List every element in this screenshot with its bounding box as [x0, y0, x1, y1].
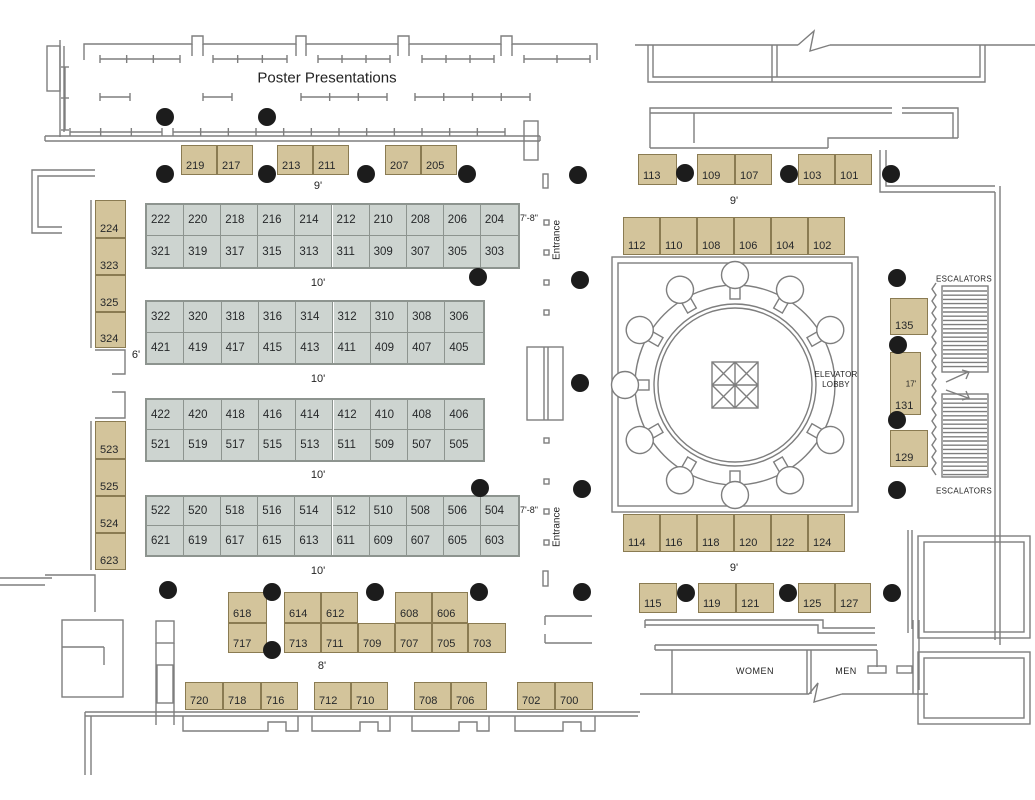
booth-219[interactable]: 219 — [181, 145, 217, 175]
booth-520[interactable]: 520 — [184, 497, 221, 526]
booth-507[interactable]: 507 — [408, 430, 445, 460]
women-room-label: WOMEN — [736, 666, 774, 676]
booth-122[interactable]: 122 — [771, 514, 808, 552]
booth-113[interactable]: 113 — [638, 154, 677, 185]
booth-216[interactable]: 216 — [258, 205, 295, 236]
booth-621[interactable]: 621 — [147, 526, 184, 555]
men-room-label: MEN — [835, 666, 857, 676]
booth-314[interactable]: 314 — [296, 302, 333, 333]
booth-420[interactable]: 420 — [184, 400, 221, 430]
booth-320[interactable]: 320 — [184, 302, 221, 333]
booth-414[interactable]: 414 — [296, 400, 333, 430]
column-dot — [159, 581, 177, 599]
column-dot — [258, 165, 276, 183]
booth-419[interactable]: 419 — [184, 333, 221, 364]
booth-700[interactable]: 700 — [555, 682, 593, 710]
column-dot — [573, 583, 591, 601]
booth-310[interactable]: 310 — [371, 302, 408, 333]
booth-611[interactable]: 611 — [333, 526, 370, 555]
booth-212[interactable]: 212 — [333, 205, 370, 236]
booth-523[interactable]: 523 — [95, 421, 126, 459]
booth-606[interactable]: 606 — [432, 592, 468, 623]
column-dot — [888, 481, 906, 499]
column-dot — [779, 584, 797, 602]
column-dot — [888, 269, 906, 287]
booth-312[interactable]: 312 — [334, 302, 371, 333]
escalators-label-bottom: ESCALATORS — [936, 487, 992, 496]
booth-129[interactable]: 129 — [890, 430, 928, 467]
escalators-label-top: ESCALATORS — [936, 275, 992, 284]
booth-319[interactable]: 319 — [184, 236, 221, 267]
booth-204[interactable]: 204 — [481, 205, 518, 236]
booth-135[interactable]: 135 — [890, 298, 928, 335]
booth-521[interactable]: 521 — [147, 430, 184, 460]
booth-509[interactable]: 509 — [371, 430, 408, 460]
booth-124[interactable]: 124 — [808, 514, 845, 552]
booth-703[interactable]: 703 — [468, 623, 506, 653]
booth-716[interactable]: 716 — [261, 682, 298, 710]
poster-presentations-label: Poster Presentations — [257, 70, 396, 87]
booth-110[interactable]: 110 — [660, 217, 697, 255]
dimension-label: 9' — [314, 180, 322, 192]
booth-127[interactable]: 127 — [835, 583, 871, 613]
column-dot — [357, 165, 375, 183]
booth-421[interactable]: 421 — [147, 333, 184, 364]
booth-309[interactable]: 309 — [370, 236, 407, 267]
booth-623[interactable]: 623 — [95, 533, 126, 570]
column-dot — [263, 583, 281, 601]
booth-205[interactable]: 205 — [421, 145, 457, 175]
booth-505[interactable]: 505 — [445, 430, 482, 460]
booth-107[interactable]: 107 — [735, 154, 772, 185]
booth-506[interactable]: 506 — [444, 497, 481, 526]
column-dot — [889, 336, 907, 354]
booth-224[interactable]: 224 — [95, 200, 126, 238]
column-dot — [366, 583, 384, 601]
dimension-label: 10' — [311, 469, 325, 481]
booth-711[interactable]: 711 — [321, 623, 358, 653]
booth-407[interactable]: 407 — [408, 333, 445, 364]
booth-321[interactable]: 321 — [147, 236, 184, 267]
column-dot — [571, 271, 589, 289]
booth-522[interactable]: 522 — [147, 497, 184, 526]
booth-510[interactable]: 510 — [370, 497, 407, 526]
booth-323[interactable]: 323 — [95, 238, 126, 275]
booth-717[interactable]: 717 — [228, 623, 267, 653]
booth-308[interactable]: 308 — [408, 302, 445, 333]
dimension-label: 9' — [730, 195, 738, 207]
dimension-label: 7'-8" — [520, 213, 538, 223]
booth-514[interactable]: 514 — [295, 497, 332, 526]
booth-411[interactable]: 411 — [334, 333, 371, 364]
elevator-lobby-line1: ELEVATOR — [815, 370, 858, 379]
column-dot — [258, 108, 276, 126]
booth-313[interactable]: 313 — [295, 236, 332, 267]
dimension-label: 8' — [318, 660, 326, 672]
booth-114[interactable]: 114 — [623, 514, 660, 552]
dimension-label: 10' — [311, 565, 325, 577]
booth-217[interactable]: 217 — [217, 145, 253, 175]
dimension-label: 17' — [906, 380, 916, 389]
booth-710[interactable]: 710 — [351, 682, 388, 710]
booth-109[interactable]: 109 — [697, 154, 735, 185]
booth-508[interactable]: 508 — [407, 497, 444, 526]
booth-617[interactable]: 617 — [221, 526, 258, 555]
booth-702[interactable]: 702 — [517, 682, 555, 710]
booth-115[interactable]: 115 — [639, 583, 677, 613]
dimension-label: 7'-8" — [520, 505, 538, 515]
entrance-label-lower: Entrance — [552, 507, 563, 547]
booth-512[interactable]: 512 — [333, 497, 370, 526]
booth-303[interactable]: 303 — [481, 236, 518, 267]
booth-416[interactable]: 416 — [259, 400, 296, 430]
column-dot — [263, 641, 281, 659]
booth-102[interactable]: 102 — [808, 217, 845, 255]
booth-408[interactable]: 408 — [408, 400, 445, 430]
booth-619[interactable]: 619 — [184, 526, 221, 555]
booth-218[interactable]: 218 — [221, 205, 258, 236]
booth-214[interactable]: 214 — [295, 205, 332, 236]
column-dot — [573, 480, 591, 498]
booth-418[interactable]: 418 — [222, 400, 259, 430]
booth-104[interactable]: 104 — [771, 217, 808, 255]
booth-112[interactable]: 112 — [623, 217, 660, 255]
booth-210[interactable]: 210 — [370, 205, 407, 236]
booth-712[interactable]: 712 — [314, 682, 351, 710]
booth-118[interactable]: 118 — [697, 514, 734, 552]
booth-305[interactable]: 305 — [444, 236, 481, 267]
booth-307[interactable]: 307 — [407, 236, 444, 267]
booth-318[interactable]: 318 — [222, 302, 259, 333]
dimension-label: 6' — [132, 349, 140, 361]
booth-121[interactable]: 121 — [736, 583, 774, 613]
booth-207[interactable]: 207 — [385, 145, 421, 175]
booth-519[interactable]: 519 — [184, 430, 221, 460]
booth-101[interactable]: 101 — [835, 154, 872, 185]
booth-603[interactable]: 603 — [481, 526, 518, 555]
booth-504[interactable]: 504 — [481, 497, 518, 526]
booth-706[interactable]: 706 — [451, 682, 487, 710]
booth-612[interactable]: 612 — [321, 592, 358, 623]
booth-306[interactable]: 306 — [445, 302, 482, 333]
dimension-label: 9' — [730, 562, 738, 574]
booth-608[interactable]: 608 — [395, 592, 432, 623]
booth-705[interactable]: 705 — [432, 623, 468, 653]
column-dot — [780, 165, 798, 183]
booth-317[interactable]: 317 — [221, 236, 258, 267]
booth-220[interactable]: 220 — [184, 205, 221, 236]
booth-524[interactable]: 524 — [95, 496, 126, 533]
column-dot — [677, 584, 695, 602]
booth-324[interactable]: 324 — [95, 312, 126, 348]
column-dot — [471, 479, 489, 497]
booth-206[interactable]: 206 — [444, 205, 481, 236]
booth-119[interactable]: 119 — [698, 583, 736, 613]
booth-517[interactable]: 517 — [222, 430, 259, 460]
column-dot — [571, 374, 589, 392]
floor-plan: Poster Presentations Entrance Entrance E… — [0, 0, 1035, 800]
booth-409[interactable]: 409 — [371, 333, 408, 364]
booth-518[interactable]: 518 — [221, 497, 258, 526]
booth-708[interactable]: 708 — [414, 682, 451, 710]
booth-208[interactable]: 208 — [407, 205, 444, 236]
booth-615[interactable]: 615 — [258, 526, 295, 555]
dimension-label: 10' — [311, 277, 325, 289]
booth-609[interactable]: 609 — [370, 526, 407, 555]
booth-614[interactable]: 614 — [284, 592, 321, 623]
booth-613[interactable]: 613 — [295, 526, 332, 555]
column-dot — [882, 165, 900, 183]
booth-412[interactable]: 412 — [334, 400, 371, 430]
booth-525[interactable]: 525 — [95, 459, 126, 496]
column-dot — [569, 166, 587, 184]
booth-315[interactable]: 315 — [258, 236, 295, 267]
booth-422[interactable]: 422 — [147, 400, 184, 430]
elevator-lobby-label: ELEVATOR LOBBY — [815, 370, 858, 390]
dimension-label: 10' — [311, 373, 325, 385]
booth-718[interactable]: 718 — [223, 682, 261, 710]
booth-516[interactable]: 516 — [258, 497, 295, 526]
elevator-lobby-line2: LOBBY — [822, 380, 850, 389]
column-dot — [888, 411, 906, 429]
booth-106[interactable]: 106 — [734, 217, 771, 255]
booth-511[interactable]: 511 — [334, 430, 371, 460]
entrance-label-upper: Entrance — [552, 220, 563, 260]
booth-406[interactable]: 406 — [445, 400, 482, 430]
booth-707[interactable]: 707 — [395, 623, 432, 653]
column-dot — [883, 584, 901, 602]
booth-325[interactable]: 325 — [95, 275, 126, 312]
booth-125[interactable]: 125 — [798, 583, 835, 613]
booth-116[interactable]: 116 — [660, 514, 697, 552]
column-dot — [469, 268, 487, 286]
booth-322[interactable]: 322 — [147, 302, 184, 333]
booth-513[interactable]: 513 — [296, 430, 333, 460]
column-dot — [458, 165, 476, 183]
booth-618[interactable]: 618 — [228, 592, 267, 623]
booth-607[interactable]: 607 — [407, 526, 444, 555]
booth-515[interactable]: 515 — [259, 430, 296, 460]
booth-417[interactable]: 417 — [222, 333, 259, 364]
column-dot — [676, 164, 694, 182]
booth-108[interactable]: 108 — [697, 217, 734, 255]
booth-415[interactable]: 415 — [259, 333, 296, 364]
booth-713[interactable]: 713 — [284, 623, 321, 653]
booth-316[interactable]: 316 — [259, 302, 296, 333]
booth-213[interactable]: 213 — [277, 145, 313, 175]
booth-120[interactable]: 120 — [734, 514, 771, 552]
booth-103[interactable]: 103 — [798, 154, 835, 185]
booth-709[interactable]: 709 — [358, 623, 395, 653]
column-dot — [156, 108, 174, 126]
column-dot — [156, 165, 174, 183]
booth-410[interactable]: 410 — [371, 400, 408, 430]
booth-405[interactable]: 405 — [445, 333, 482, 364]
booth-413[interactable]: 413 — [296, 333, 333, 364]
booth-311[interactable]: 311 — [333, 236, 370, 267]
column-dot — [470, 583, 488, 601]
booth-222[interactable]: 222 — [147, 205, 184, 236]
booth-605[interactable]: 605 — [444, 526, 481, 555]
booth-211[interactable]: 211 — [313, 145, 349, 175]
booth-720[interactable]: 720 — [185, 682, 223, 710]
